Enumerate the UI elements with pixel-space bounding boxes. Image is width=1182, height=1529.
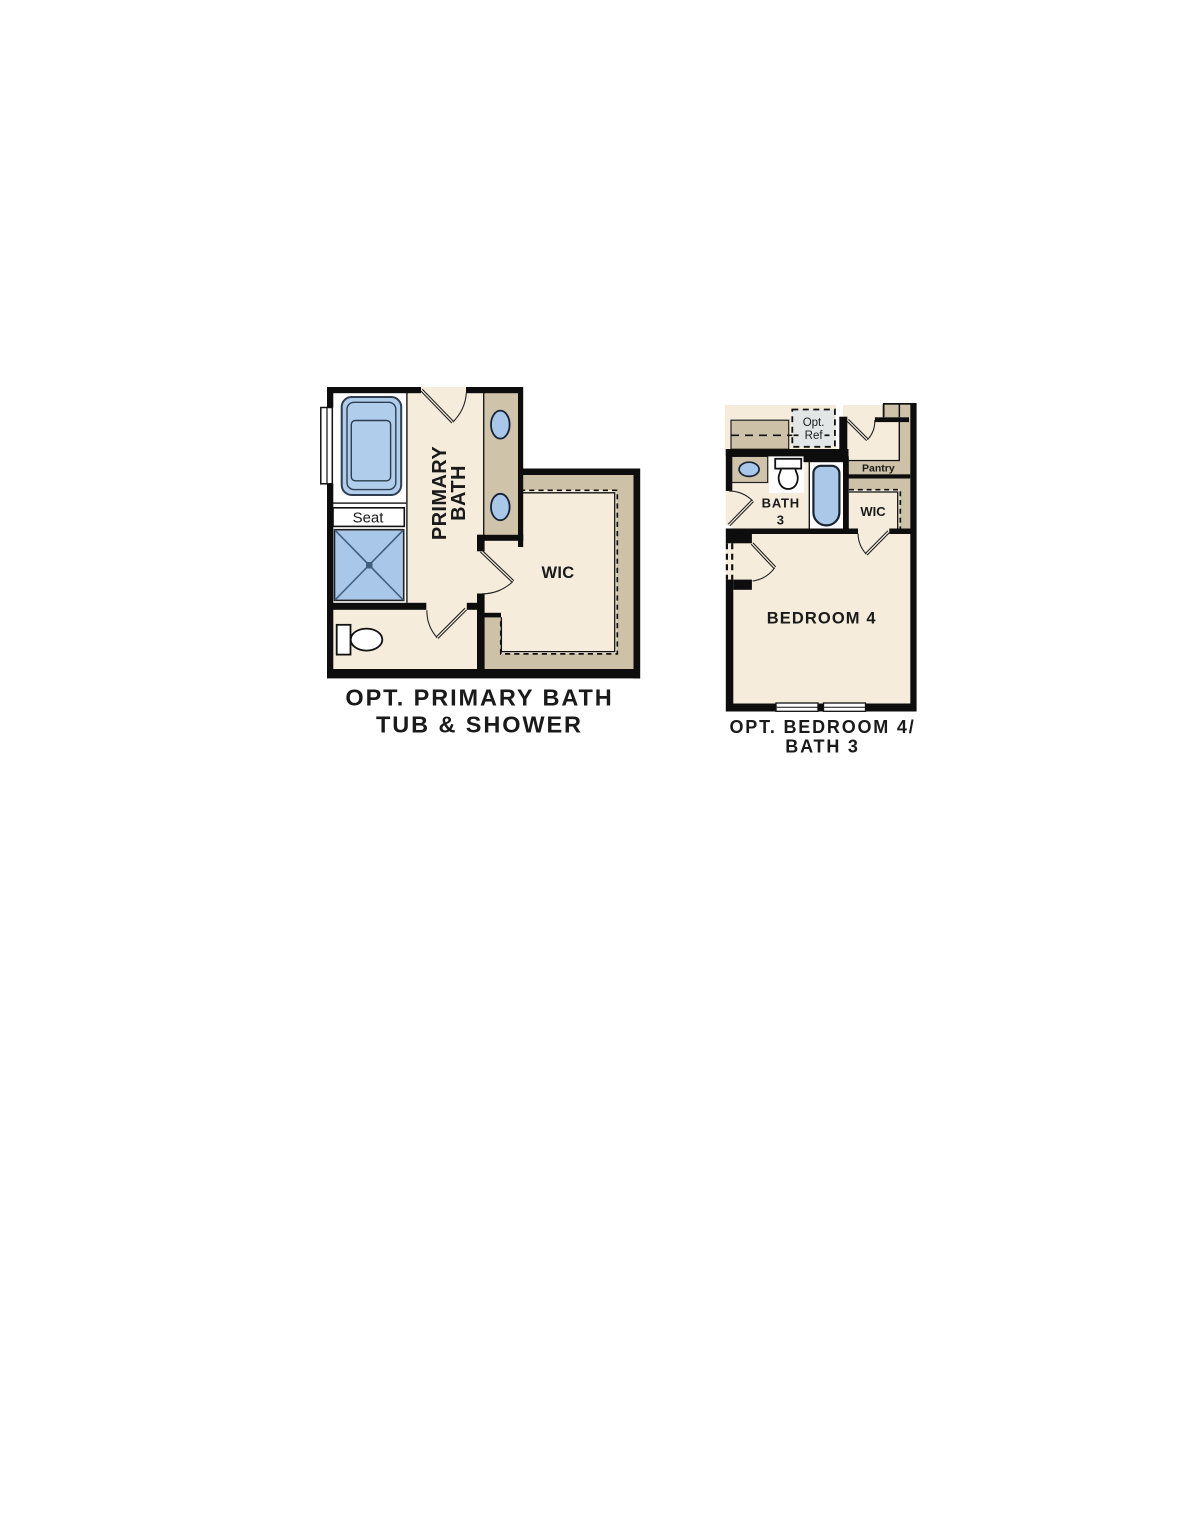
- svg-text:OPT. PRIMARY BATHTUB & SHOWER: OPT. PRIMARY BATHTUB & SHOWER: [345, 685, 613, 738]
- svg-text:Seat: Seat: [353, 510, 385, 527]
- svg-text:WIC: WIC: [542, 564, 575, 582]
- svg-text:BEDROOM 4: BEDROOM 4: [767, 609, 877, 627]
- svg-text:Opt.Ref: Opt.Ref: [803, 417, 825, 442]
- svg-text:WIC: WIC: [860, 504, 886, 519]
- svg-text:Pantry: Pantry: [862, 462, 895, 474]
